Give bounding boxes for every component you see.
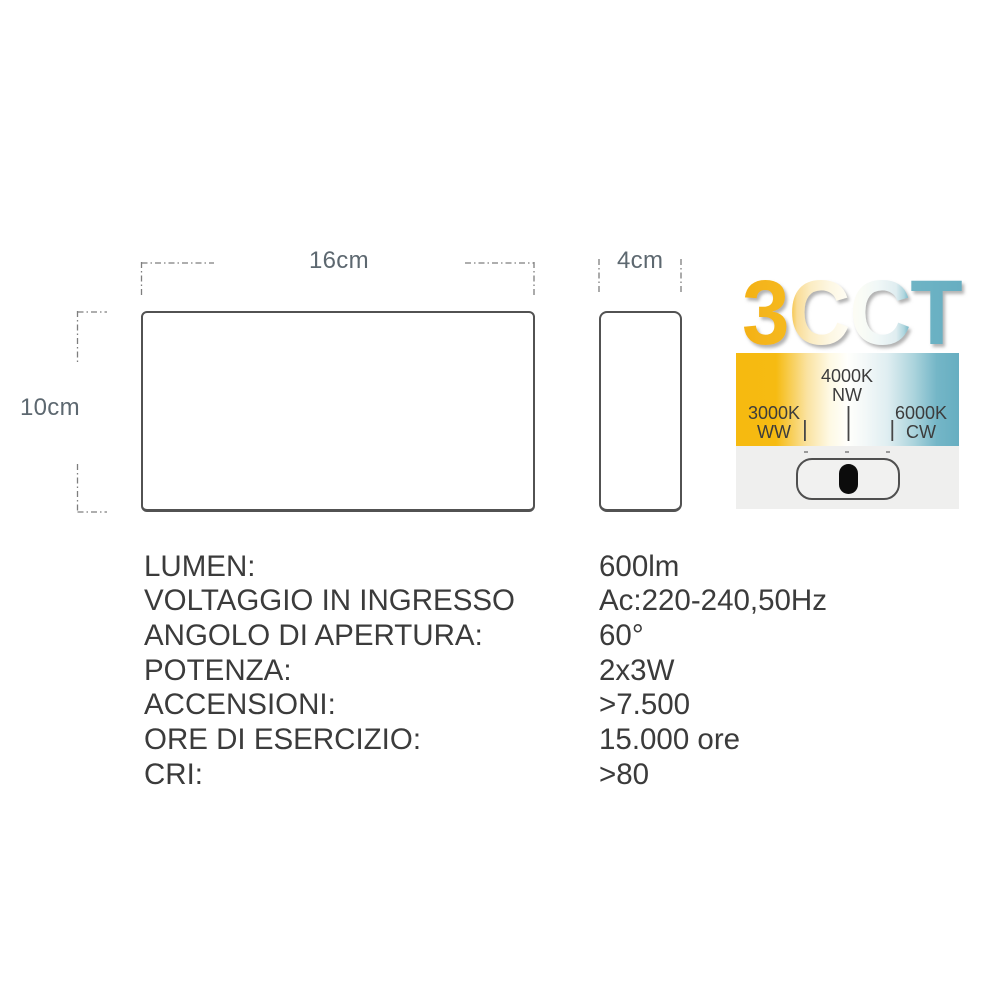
svg-text:3CCT: 3CCT (742, 261, 962, 360)
